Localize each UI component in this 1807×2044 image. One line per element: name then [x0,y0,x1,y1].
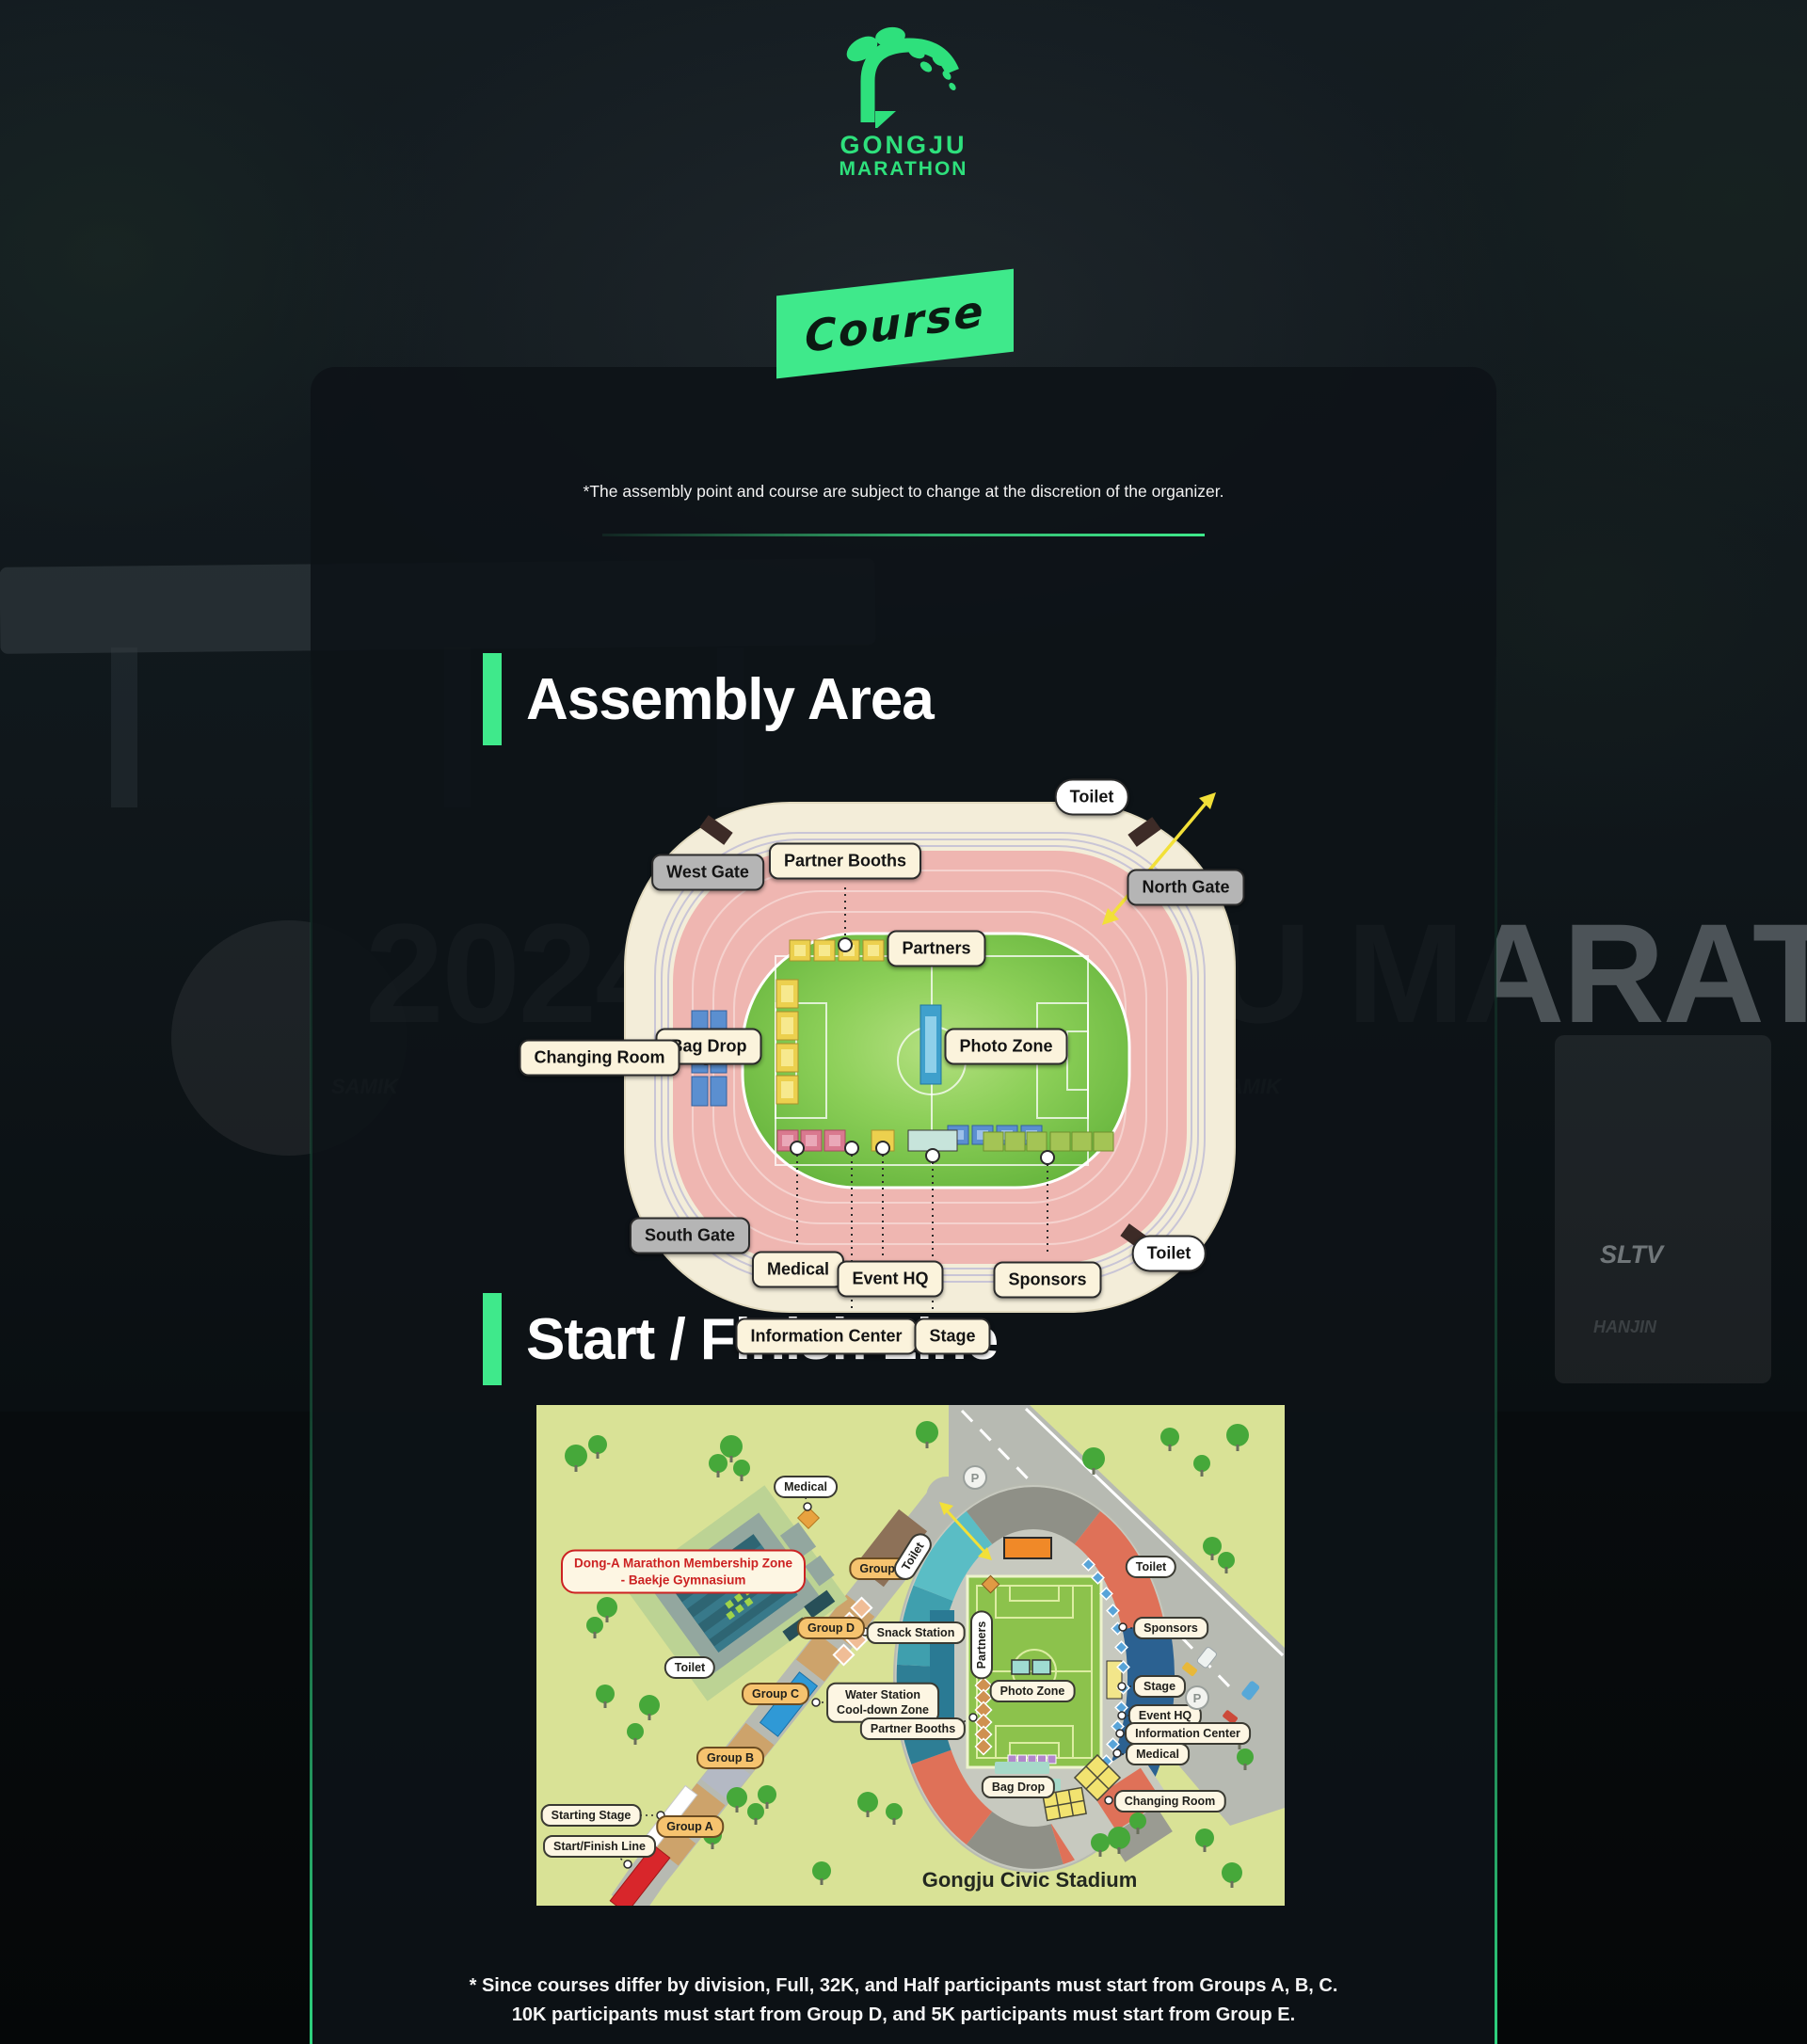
medical-booths [777,1130,845,1151]
map-label-medical-right: Medical [1126,1743,1190,1765]
map-stadium-name: Gongju Civic Stadium [922,1868,1138,1892]
background-sltv-text: SLTV [1600,1240,1663,1270]
label-sponsors: Sponsors [993,1262,1101,1299]
assembly-area-diagram: Toilet West Gate Partner Booths North Ga… [527,762,1280,1374]
label-toilet-north: Toilet [1055,779,1129,816]
map-label-partners: Partners [970,1611,993,1680]
map-label-group-a: Group A [656,1815,724,1838]
assembly-area-title: Assembly Area [526,666,934,733]
background-sign-board [1555,1035,1771,1383]
label-information-center: Information Center [735,1318,917,1355]
map-label-sponsors: Sponsors [1133,1617,1208,1639]
background-gate-post [111,647,137,807]
map-label-donga-zone: Dong-A Marathon Membership Zone - Baekje… [561,1549,806,1593]
course-tag-text: Course [804,285,985,362]
donga-line2: - Baekje Gymnasium [574,1572,792,1589]
label-stage: Stage [914,1318,990,1355]
parking-icon: P [1185,1685,1209,1710]
logo-title: GONGJU [809,133,998,158]
label-south-gate: South Gate [630,1218,750,1254]
assembly-area-heading: Assembly Area [483,653,934,745]
label-photo-zone: Photo Zone [945,1029,1068,1065]
heading-accent-bar [483,1293,502,1385]
water-line2: Cool-down Zone [837,1702,929,1717]
background-hanjin-text: HANJIN [1593,1317,1656,1337]
divider-line [602,534,1205,536]
label-toilet-south: Toilet [1132,1236,1207,1272]
heading-accent-bar [483,653,502,745]
map-label-photo-zone: Photo Zone [990,1680,1076,1702]
gongju-civic-stadium-drawing [894,1484,1173,1872]
map-label-starting-stage: Starting Stage [541,1804,642,1827]
label-event-hq: Event HQ [837,1261,943,1298]
page: 2024 GONGJU MARATHON SAMIK SAMIK SLTV HA… [0,0,1807,2044]
panel-edge-right [1495,649,1497,2044]
map-label-group-b: Group B [696,1747,764,1769]
map-label-snack-station: Snack Station [867,1621,966,1644]
map-label-medical-top: Medical [774,1476,838,1498]
map-label-water-station: Water Station Cool-down Zone [826,1683,939,1723]
disclaimer-text: *The assembly point and course are subje… [0,482,1807,502]
map-label-stage: Stage [1133,1675,1186,1698]
map-label-bag-drop: Bag Drop [982,1776,1055,1798]
label-partners: Partners [887,931,985,967]
start-finish-map: Medical Dong-A Marathon Membership Zone … [536,1405,1285,1906]
map-label-group-d: Group D [797,1617,865,1639]
map-svg [536,1405,1285,1906]
map-label-start-finish-line: Start/Finish Line [543,1835,656,1858]
map-label-partner-booths: Partner Booths [860,1717,966,1740]
panel-edge-left [310,649,312,2044]
map-label-toilet-gym: Toilet [664,1656,715,1679]
logo-mark-icon [809,24,998,128]
footer-note-line1: * Since courses differ by division, Full… [0,1972,1807,2001]
footer-note-line2: 10K participants must start from Group D… [0,2001,1807,2030]
label-north-gate: North Gate [1127,870,1244,906]
map-label-changing-room: Changing Room [1114,1790,1226,1812]
gongju-marathon-logo: GONGJU MARATHON [809,24,998,184]
water-line1: Water Station [837,1687,929,1702]
label-partner-booths: Partner Booths [769,843,921,880]
map-label-group-c: Group C [742,1683,809,1705]
footer-note: * Since courses differ by division, Full… [0,1972,1807,2030]
map-label-information-center: Information Center [1125,1722,1251,1745]
label-changing-room: Changing Room [520,1040,680,1077]
map-label-toilet-stadium: Toilet [1126,1556,1176,1578]
stage-structure [908,1130,957,1151]
logo-subtitle: MARATHON [809,158,998,181]
label-medical: Medical [752,1252,844,1288]
donga-line1: Dong-A Marathon Membership Zone [574,1555,792,1572]
stage-orange-structure [1004,1538,1051,1558]
label-west-gate: West Gate [651,854,764,891]
parking-icon: P [963,1465,987,1490]
photo-zone-structure [920,1005,941,1084]
